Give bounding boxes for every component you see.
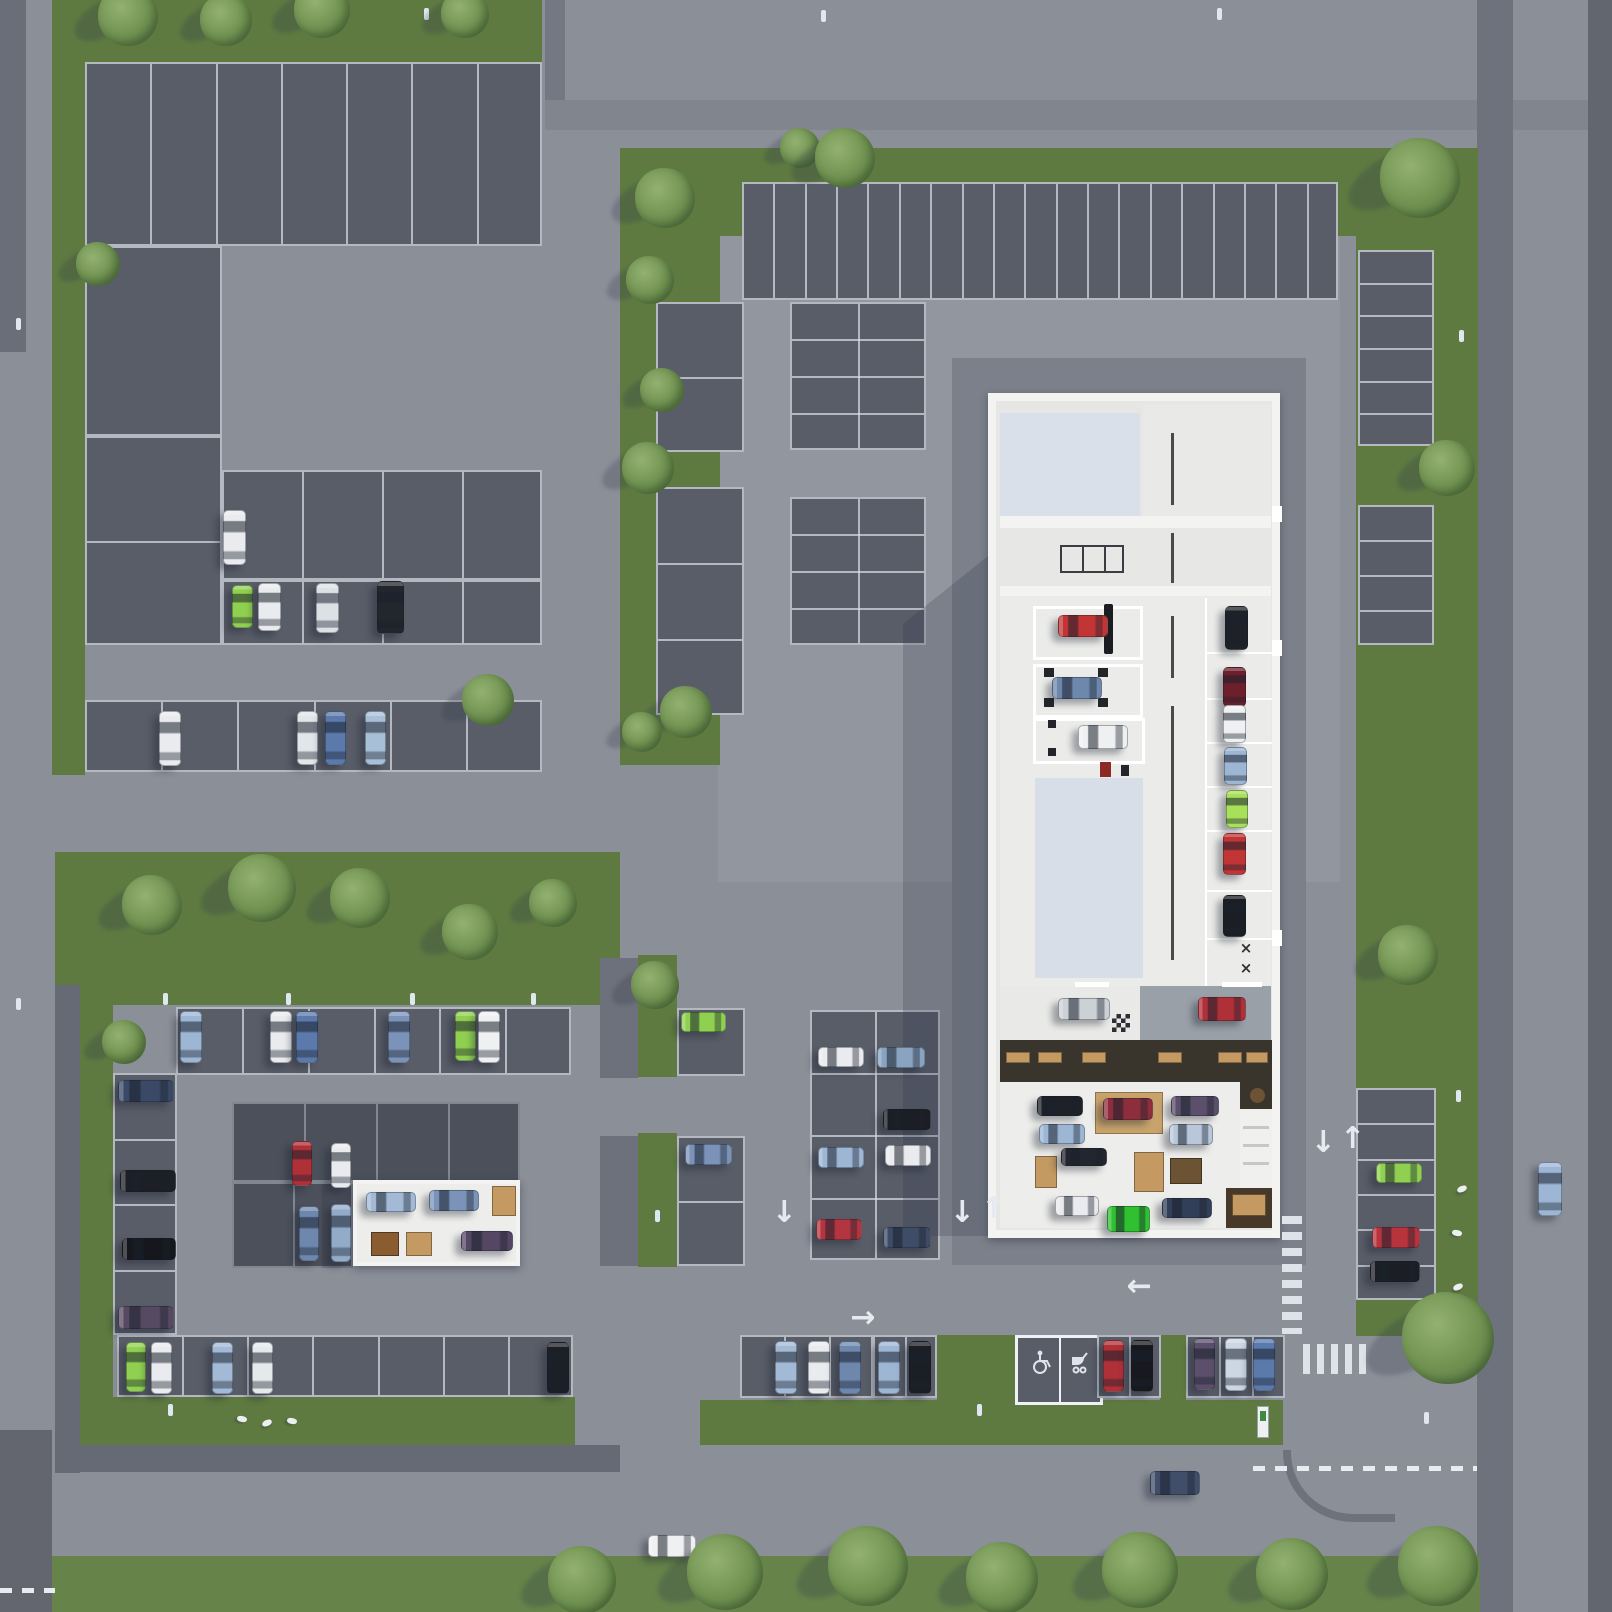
car [252,1342,273,1394]
region-left-edge-walk [0,0,26,352]
round-table [1250,1088,1265,1103]
region-grass-bl-left [80,1005,113,1447]
stall-line [462,582,464,643]
stall-line [115,1139,175,1141]
stall-line [1244,184,1246,298]
stall-line [1219,1337,1221,1396]
stall-line [237,702,239,770]
rack-line [1104,547,1106,571]
stall-line [1056,184,1058,298]
stall-line [792,534,924,536]
tree [815,128,875,188]
road-stud [977,1404,982,1416]
stall-line [1213,184,1215,298]
stall-line [899,184,901,298]
region-bl-curb-left [55,985,80,1473]
car [1370,1261,1420,1282]
car [296,1011,318,1063]
curb-arc [1283,1450,1395,1522]
tree [660,686,712,738]
car [461,1231,513,1251]
stall-line [792,608,924,610]
stall-line [247,1337,249,1395]
road-stud [655,1210,660,1222]
stall-line [462,472,464,578]
desk [1082,1052,1106,1063]
stall-line [115,1204,175,1206]
door-opening [1075,982,1109,987]
car [1078,725,1128,749]
stall-line [378,1337,380,1395]
car [1131,1340,1153,1392]
wheelchair-stall-icon [1030,1350,1056,1378]
car [299,1206,319,1261]
region-grass-bl-bottom [88,1397,575,1445]
stall-line [658,563,742,565]
room-reception-room [1000,413,1140,516]
car [292,1141,312,1186]
stall-line [312,1337,314,1395]
stall-line [658,639,742,641]
bay-line [1205,830,1272,832]
tree [1398,1526,1478,1606]
parking-stall-group [742,182,1338,300]
tree [1402,1292,1494,1384]
tree [442,904,498,960]
door-opening [1272,506,1282,522]
interior-wall [1171,433,1174,505]
stall-line [216,64,218,244]
car [818,1147,864,1168]
stall-line [508,1337,510,1395]
stall-line [1059,1338,1061,1402]
desk [1006,1052,1030,1063]
lift-post [1048,720,1056,728]
car [877,1047,925,1068]
room-mid-hall [1000,528,1271,586]
stall-line [390,702,392,770]
lift-post [1044,668,1054,677]
stall-line [293,1184,295,1266]
car [547,1342,569,1394]
stall-line [1307,184,1309,298]
car [1198,997,1246,1021]
car [1107,1206,1150,1232]
car [1372,1227,1420,1248]
lane-arrow-down: ↑ [955,1192,975,1226]
table [1170,1158,1202,1184]
parking-stall-group [85,436,222,645]
door-opening [1272,930,1282,946]
car [808,1341,830,1394]
car [478,1011,500,1063]
car [180,1011,202,1063]
tree [102,1020,146,1064]
tree [228,854,296,922]
road-stud [1217,8,1222,20]
car [1162,1198,1212,1218]
car [909,1341,931,1394]
car [1171,1096,1219,1116]
car [258,583,281,631]
tree [1419,440,1475,496]
stall-line [1181,184,1183,298]
region-top-curb-band [545,100,1612,130]
tree [462,674,514,726]
checker-table [1112,1014,1130,1032]
road-stud [16,318,21,330]
tree [631,961,679,1009]
car [1253,1338,1275,1391]
region-top-walk-strip [545,0,565,102]
stall-line [679,1201,743,1203]
car [1055,1196,1099,1216]
room-top-right-hall [1143,405,1271,516]
car [223,510,246,565]
car [1169,1124,1213,1145]
bay-line [1205,786,1272,788]
parking-stall-group [113,1073,177,1335]
table [371,1232,399,1256]
stall-line [805,184,807,298]
stall-line [1360,283,1432,285]
stall-line [792,339,924,341]
stall-line [1360,381,1432,383]
road-stud [410,993,415,1005]
road-stud [1459,330,1464,342]
stall-line [505,1009,507,1073]
tree [966,1542,1038,1612]
parking-stall-group [1358,250,1434,446]
crosswalk [1282,1216,1302,1334]
parking-stall-group [117,1335,573,1397]
tree [622,442,674,494]
stall-line [1150,184,1152,298]
stall-line [477,64,479,244]
lane-dashes [1253,1466,1477,1471]
stall-line [867,184,869,298]
car [388,1011,410,1063]
car [878,1341,900,1394]
stall-line [411,64,413,244]
stall-line [1118,184,1120,298]
region-grass-bottom-mid [700,1400,1283,1445]
lane-arrow-up: ↑ [981,1192,1001,1226]
car [1226,790,1248,828]
car [455,1011,476,1061]
stall-line [962,184,964,298]
stall-line [1360,348,1432,350]
car [1058,615,1108,637]
region-right-edge-walk [1588,0,1612,1612]
tree [548,1546,616,1612]
lift-post [1098,698,1108,707]
region-lawn-block-east [1160,1335,1186,1400]
shelf-line [1243,1126,1269,1129]
car [1223,667,1246,707]
car [1223,833,1246,875]
stall-line [448,1104,450,1180]
stall-line [150,64,152,244]
tree [687,1534,763,1610]
interior-wall [1171,706,1174,960]
car [1039,1124,1085,1144]
stall-line [836,184,838,298]
building-shadow [903,556,988,1236]
stall-line [302,582,304,643]
stall-line [182,1337,184,1395]
car [232,585,253,628]
lane-arrow-right: ↑ [844,1305,878,1325]
car [429,1190,479,1211]
stall-line [443,1337,445,1395]
bay-line [1205,652,1272,654]
stall-line [792,571,924,573]
desk [1158,1052,1182,1063]
tree [1380,138,1460,218]
car [1225,606,1248,650]
stall-line [376,1104,378,1180]
lane-arrow-down: ↑ [777,1192,797,1226]
desk [1038,1052,1062,1063]
stall-line [1360,315,1432,317]
car [1376,1163,1422,1183]
bay-line [1205,890,1272,892]
scene-root: ××↑↑↑↑↑↑↑ [0,0,1612,1612]
stall-line [905,1337,907,1396]
car [325,711,346,765]
door-opening [1222,982,1262,987]
bay-line [1205,598,1207,986]
crosswalk [1303,1344,1371,1374]
road-stud [821,10,826,22]
car [1037,1096,1083,1116]
rack-line [1082,547,1084,571]
stall-line [1275,184,1277,298]
road-stud [531,993,536,1005]
car [331,1143,351,1188]
car [1225,1338,1247,1391]
stall-line [382,472,384,578]
stall-line [346,64,348,244]
lift-post [1098,668,1108,677]
parking-stall-group [232,1102,520,1182]
car [297,711,318,765]
room-wall-band-1 [1000,516,1271,528]
parking-stall-group [176,1007,571,1075]
car [118,1080,174,1102]
lift-post [1121,765,1129,776]
car [331,1204,351,1262]
stall-line [374,1009,376,1073]
car [1052,677,1102,699]
room-staging-zone [1035,778,1143,978]
car [1224,747,1247,785]
lift-arms: × [1236,938,1256,958]
stall-line [1358,1123,1434,1125]
shelf-line [1243,1144,1269,1147]
region-corner-walk-sw [0,1430,52,1612]
desk [1035,1156,1057,1188]
desk [406,1232,432,1256]
car [1061,1148,1107,1166]
stall-line [1360,575,1432,577]
road-stud [163,993,168,1005]
door-opening [1272,640,1282,656]
stall-line [792,413,924,415]
desk [1134,1152,1164,1192]
lift-post [1044,698,1054,707]
stall-line [1360,413,1432,415]
interior-wall [1171,533,1174,583]
storage-shelves [1243,1118,1269,1178]
desk [1218,1052,1242,1063]
car [366,1192,416,1212]
car [818,1047,864,1067]
parking-stall-group [85,62,542,246]
sign-stripe [1260,1411,1266,1421]
car [685,1144,732,1165]
car [1103,1098,1153,1120]
car [151,1342,172,1394]
car [118,1306,174,1329]
stall-line [1360,540,1432,542]
lane-dashes [0,1588,55,1593]
lane-arrow-up: ↑ [1340,1122,1360,1156]
interior-wall [1171,616,1174,678]
car [365,711,386,765]
tree [1256,1538,1328,1610]
car [885,1145,931,1166]
tool-cart [1100,762,1111,777]
stall-line [281,64,283,244]
tree [122,875,182,935]
road-stud [286,993,291,1005]
car [126,1342,146,1392]
tree [1102,1532,1178,1608]
stroller-stall-icon [1069,1350,1095,1378]
stall-line [302,472,304,578]
stall-line [1360,610,1432,612]
car [316,583,339,633]
shelf-line [1243,1162,1269,1165]
car [816,1219,862,1240]
stall-line [773,184,775,298]
car [775,1341,797,1394]
region-grass-connector-2 [638,1133,677,1267]
stall-line [993,184,995,298]
region-grass-left-strip [52,0,85,775]
stall-line [87,541,220,543]
table [1232,1194,1266,1216]
road-stud [1456,1090,1461,1102]
parking-stall-group [790,302,926,450]
tree [640,368,684,412]
site-plan-render: ××↑↑↑↑↑↑↑ [0,0,1612,1612]
car [377,581,404,634]
car [839,1341,861,1394]
lane-arrow-left: ↑ [1124,1279,1158,1299]
car [1194,1338,1215,1390]
lift-arms: × [1236,958,1256,978]
storage-rack [1060,545,1124,573]
tree [828,1526,908,1606]
car [1058,998,1110,1020]
stall-line [439,1009,441,1073]
car [1150,1471,1200,1495]
stall-line [930,184,932,298]
parking-stall-group [656,487,744,715]
tree [626,256,674,304]
car [883,1109,931,1130]
tree [76,242,120,286]
car [159,711,181,766]
tree [635,168,695,228]
region-bl-curb-bottom [55,1445,620,1472]
car [270,1011,292,1063]
car [681,1012,726,1032]
car [883,1227,931,1248]
lane-arrow-down: ↑ [1316,1122,1336,1156]
tree [622,712,662,752]
car [1223,895,1246,937]
car [120,1170,176,1192]
parking-stall-group [1358,505,1434,645]
car [1538,1162,1562,1216]
parking-stall-group [222,470,542,580]
lift-post [1048,748,1056,756]
tree [330,868,390,928]
desk [1246,1052,1268,1063]
stall-line [1024,184,1026,298]
desk [492,1186,516,1216]
info-sign [1257,1406,1269,1438]
region-walk-connector-2 [600,1136,638,1266]
road-stud [1424,1412,1429,1424]
car [1223,705,1246,743]
tree [1378,925,1438,985]
region-right-sidewalk [1477,0,1513,1612]
stall-line [792,376,924,378]
road-stud [16,998,21,1010]
stall-line [1087,184,1089,298]
road-stud [168,1404,173,1416]
region-lawn-block-west [937,1335,1015,1400]
car [122,1238,176,1260]
stall-line [242,1009,244,1073]
room-wall-band-2 [1000,586,1271,596]
stall-line [1358,1159,1434,1161]
car [1103,1340,1124,1392]
stall-line [115,1270,175,1272]
car [212,1342,233,1394]
stall-line [1358,1194,1434,1196]
tree [529,879,577,927]
